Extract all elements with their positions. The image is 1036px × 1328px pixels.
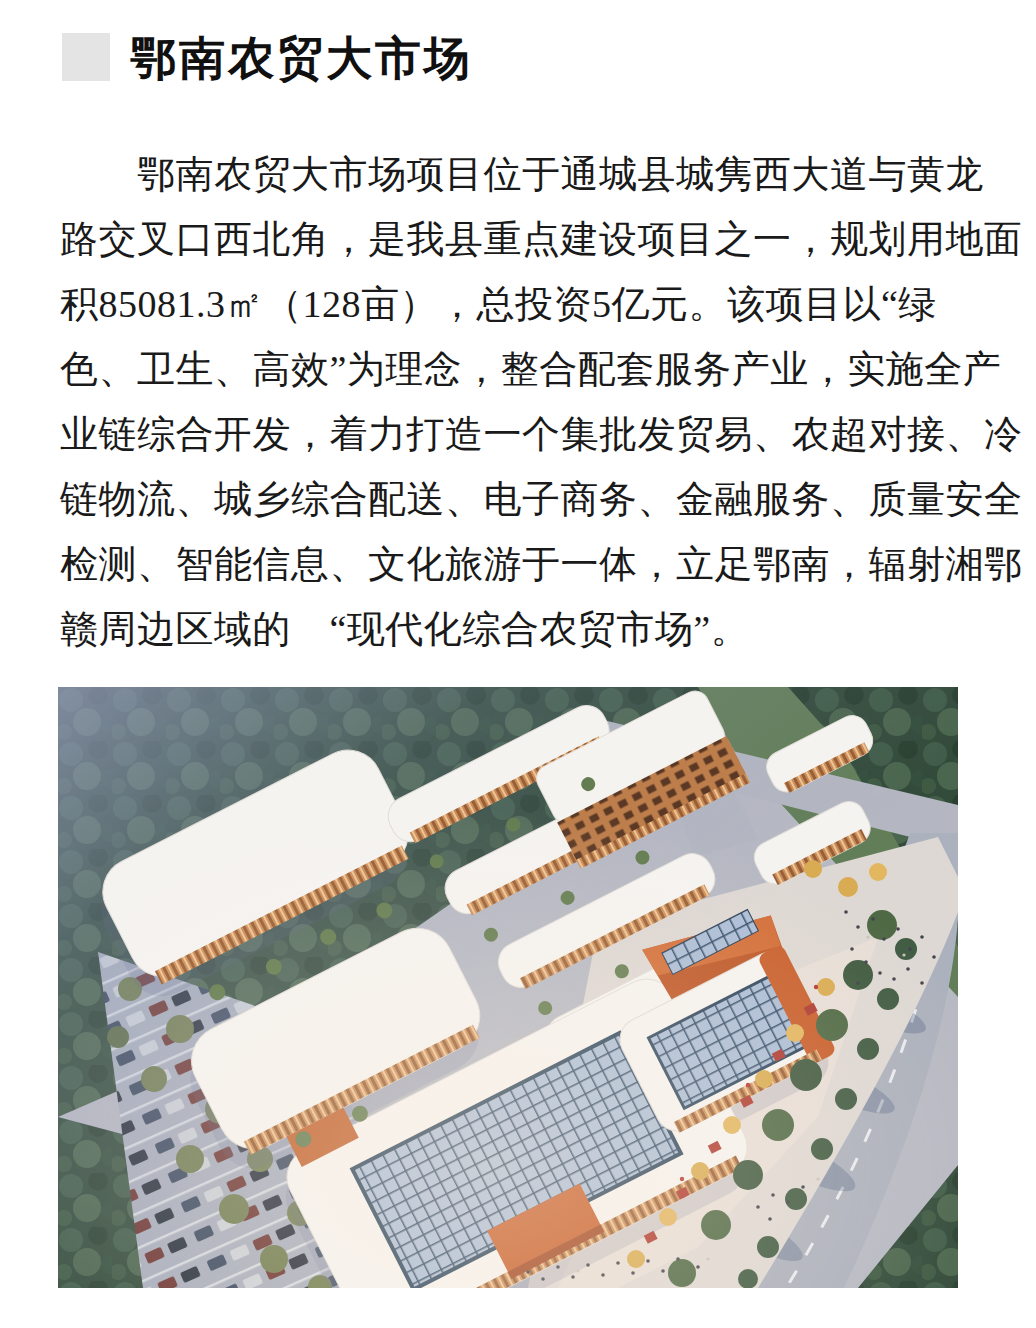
paragraph-line: 鄂南农贸大市场项目位于通城县城隽西大道与黄龙	[60, 142, 978, 207]
paragraph-line: 业链综合开发，着力打造一个集批发贸易、农超对接、冷	[60, 402, 978, 467]
article-paragraph: 鄂南农贸大市场项目位于通城县城隽西大道与黄龙 路交叉口西北角，是我县重点建设项目…	[60, 142, 978, 662]
page-title: 鄂南农贸大市场	[130, 33, 473, 83]
title-bullet-square	[62, 33, 110, 81]
paragraph-line: 赣周边区域的 “现代化综合农贸市场”。	[60, 597, 978, 662]
paragraph-line: 路交叉口西北角，是我县重点建设项目之一，规划用地面	[60, 207, 978, 272]
article-header: 鄂南农贸大市场	[62, 33, 473, 83]
paragraph-line: 积85081.3㎡（128亩），总投资5亿元。该项目以“绿	[60, 272, 978, 337]
sunlight-overlay	[58, 687, 958, 1288]
paragraph-line: 检测、智能信息、文化旅游于一体，立足鄂南，辐射湘鄂	[60, 532, 978, 597]
paragraph-line: 色、卫生、高效”为理念，整合配套服务产业，实施全产	[60, 337, 978, 402]
aerial-rendering-figure	[58, 687, 958, 1288]
aerial-rendering-image	[58, 687, 958, 1288]
paragraph-line: 链物流、城乡综合配送、电子商务、金融服务、质量安全	[60, 467, 978, 532]
